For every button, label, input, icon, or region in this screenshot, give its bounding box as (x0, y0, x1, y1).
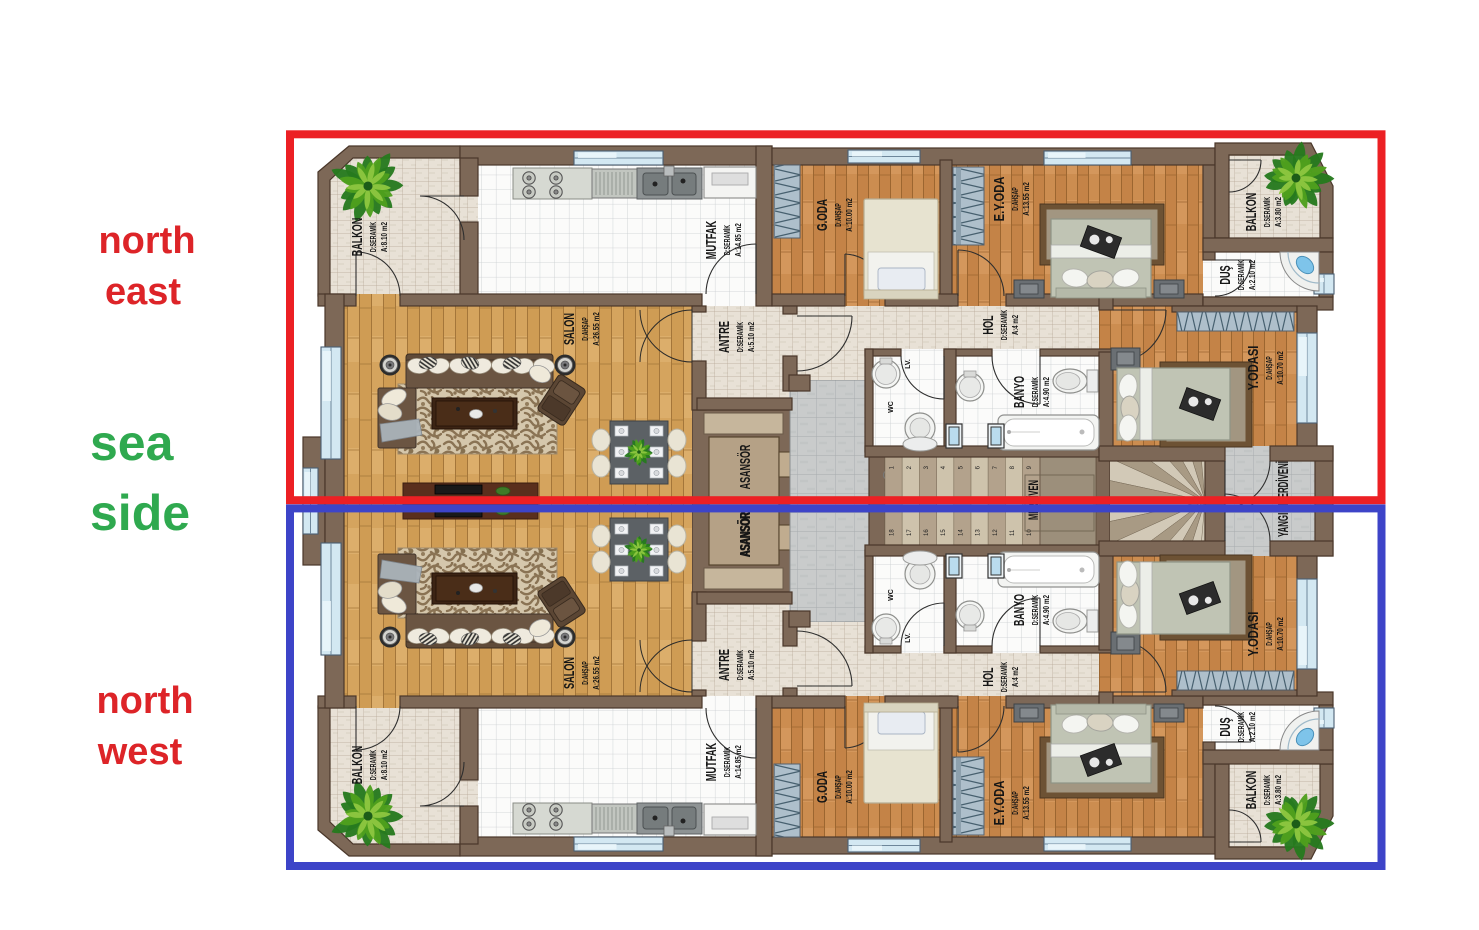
svg-text:17: 17 (907, 529, 913, 536)
svg-text:A:10.70 m2: A:10.70 m2 (1276, 617, 1285, 651)
svg-text:LV.: LV. (905, 359, 912, 369)
svg-text:A:10.00 m2: A:10.00 m2 (845, 770, 854, 804)
svg-text:A:10.70 m2: A:10.70 m2 (1276, 351, 1285, 385)
svg-text:D:SERAMİK: D:SERAMİK (736, 322, 745, 352)
svg-text:A:8.10 m2: A:8.10 m2 (380, 221, 389, 252)
svg-text:D:SERAMİK: D:SERAMİK (1237, 712, 1246, 742)
svg-text:A:4 m2: A:4 m2 (1011, 667, 1020, 688)
svg-text:10: 10 (1027, 529, 1033, 536)
svg-text:D:SERAMİK: D:SERAMİK (1031, 595, 1040, 625)
svg-text:HOL: HOL (980, 667, 997, 686)
svg-text:D:SERAMİK: D:SERAMİK (1263, 197, 1272, 227)
svg-text:D:SERAMİK: D:SERAMİK (369, 750, 378, 780)
svg-text:BANYO: BANYO (1011, 594, 1028, 626)
svg-text:A:4 m2: A:4 m2 (1011, 315, 1020, 336)
svg-text:A:3.80 m2: A:3.80 m2 (1274, 196, 1283, 227)
svg-text:WC: WC (888, 589, 895, 601)
svg-text:D:SERAMİK: D:SERAMİK (369, 222, 378, 252)
svg-text:MUTFAK: MUTFAK (703, 221, 720, 259)
svg-text:13: 13 (976, 529, 982, 536)
svg-text:BALKON: BALKON (349, 746, 366, 784)
svg-text:G.ODA: G.ODA (814, 771, 831, 803)
svg-text:north: north (96, 680, 193, 722)
svg-text:A:13.55 m2: A:13.55 m2 (1022, 182, 1031, 216)
svg-text:ASANSÖR: ASANSÖR (737, 445, 754, 490)
svg-text:18: 18 (890, 529, 896, 536)
svg-text:SALON: SALON (561, 657, 578, 689)
svg-text:D:SERAMİK: D:SERAMİK (1237, 260, 1246, 290)
svg-text:HOL: HOL (980, 315, 997, 334)
svg-text:A:13.55 m2: A:13.55 m2 (1022, 786, 1031, 820)
svg-text:BALKON: BALKON (1243, 193, 1260, 231)
svg-text:D:SERAMİK: D:SERAMİK (1000, 310, 1009, 340)
svg-text:15: 15 (941, 529, 947, 536)
svg-text:sea: sea (90, 415, 175, 471)
svg-text:A:14.85 m2: A:14.85 m2 (734, 745, 743, 779)
svg-text:A:26.55 m2: A:26.55 m2 (592, 312, 601, 346)
svg-text:Y.ODASI: Y.ODASI (1245, 346, 1262, 391)
svg-text:east: east (105, 271, 181, 313)
svg-text:D:SERAMİK: D:SERAMİK (736, 650, 745, 680)
svg-text:A:14.85 m2: A:14.85 m2 (734, 223, 743, 257)
svg-text:DUŞ: DUŞ (1217, 717, 1234, 736)
svg-text:D:AHŞAP: D:AHŞAP (1011, 791, 1020, 815)
svg-text:D:SERAMİK: D:SERAMİK (723, 225, 732, 255)
svg-text:D:AHŞAP: D:AHŞAP (581, 661, 590, 685)
svg-text:BALKON: BALKON (1243, 771, 1260, 809)
svg-text:A:5.10 m2: A:5.10 m2 (747, 649, 756, 680)
svg-text:D:AHŞAP: D:AHŞAP (1265, 622, 1274, 646)
svg-text:north: north (98, 220, 195, 262)
svg-text:A:10.00 m2: A:10.00 m2 (845, 198, 854, 232)
svg-text:D:SERAMİK: D:SERAMİK (1263, 775, 1272, 805)
svg-text:BANYO: BANYO (1011, 376, 1028, 408)
svg-text:E.Y.ODA: E.Y.ODA (991, 176, 1008, 221)
svg-text:WC: WC (888, 401, 895, 413)
svg-text:D:SERAMİK: D:SERAMİK (723, 747, 732, 777)
svg-text:11: 11 (1010, 529, 1016, 536)
svg-text:D:AHŞAP: D:AHŞAP (834, 775, 843, 799)
svg-text:12: 12 (993, 529, 999, 536)
svg-text:A:4.90 m2: A:4.90 m2 (1042, 594, 1051, 625)
svg-text:D:AHŞAP: D:AHŞAP (1011, 187, 1020, 211)
svg-text:A:4.90 m2: A:4.90 m2 (1042, 376, 1051, 407)
svg-text:E.Y.ODA: E.Y.ODA (991, 780, 1008, 825)
svg-text:A:3.80 m2: A:3.80 m2 (1274, 774, 1283, 805)
svg-text:ANTRE: ANTRE (716, 321, 733, 353)
svg-text:D:AHŞAP: D:AHŞAP (581, 317, 590, 341)
svg-text:14: 14 (958, 529, 964, 536)
svg-text:ANTRE: ANTRE (716, 649, 733, 681)
svg-text:A:2.10 m2: A:2.10 m2 (1248, 259, 1257, 290)
svg-text:Y.ODASI: Y.ODASI (1245, 612, 1262, 657)
svg-text:D:SERAMİK: D:SERAMİK (1000, 662, 1009, 692)
svg-text:16: 16 (924, 529, 930, 536)
svg-text:MUTFAK: MUTFAK (703, 743, 720, 781)
svg-text:D:AHŞAP: D:AHŞAP (834, 203, 843, 227)
svg-text:ASANSÖR: ASANSÖR (737, 513, 754, 558)
svg-text:D:AHŞAP: D:AHŞAP (1265, 356, 1274, 380)
svg-text:G.ODA: G.ODA (814, 199, 831, 231)
svg-text:D:SERAMİK: D:SERAMİK (1031, 377, 1040, 407)
svg-text:A:26.55 m2: A:26.55 m2 (592, 656, 601, 690)
svg-text:west: west (97, 731, 183, 773)
svg-text:BALKON: BALKON (349, 218, 366, 256)
svg-text:side: side (90, 485, 190, 541)
svg-text:A:2.10 m2: A:2.10 m2 (1248, 711, 1257, 742)
svg-text:SALON: SALON (561, 313, 578, 345)
svg-text:LV.: LV. (905, 633, 912, 643)
svg-text:A:8.10 m2: A:8.10 m2 (380, 749, 389, 780)
svg-text:DUŞ: DUŞ (1217, 265, 1234, 284)
svg-text:A:5.10 m2: A:5.10 m2 (747, 321, 756, 352)
